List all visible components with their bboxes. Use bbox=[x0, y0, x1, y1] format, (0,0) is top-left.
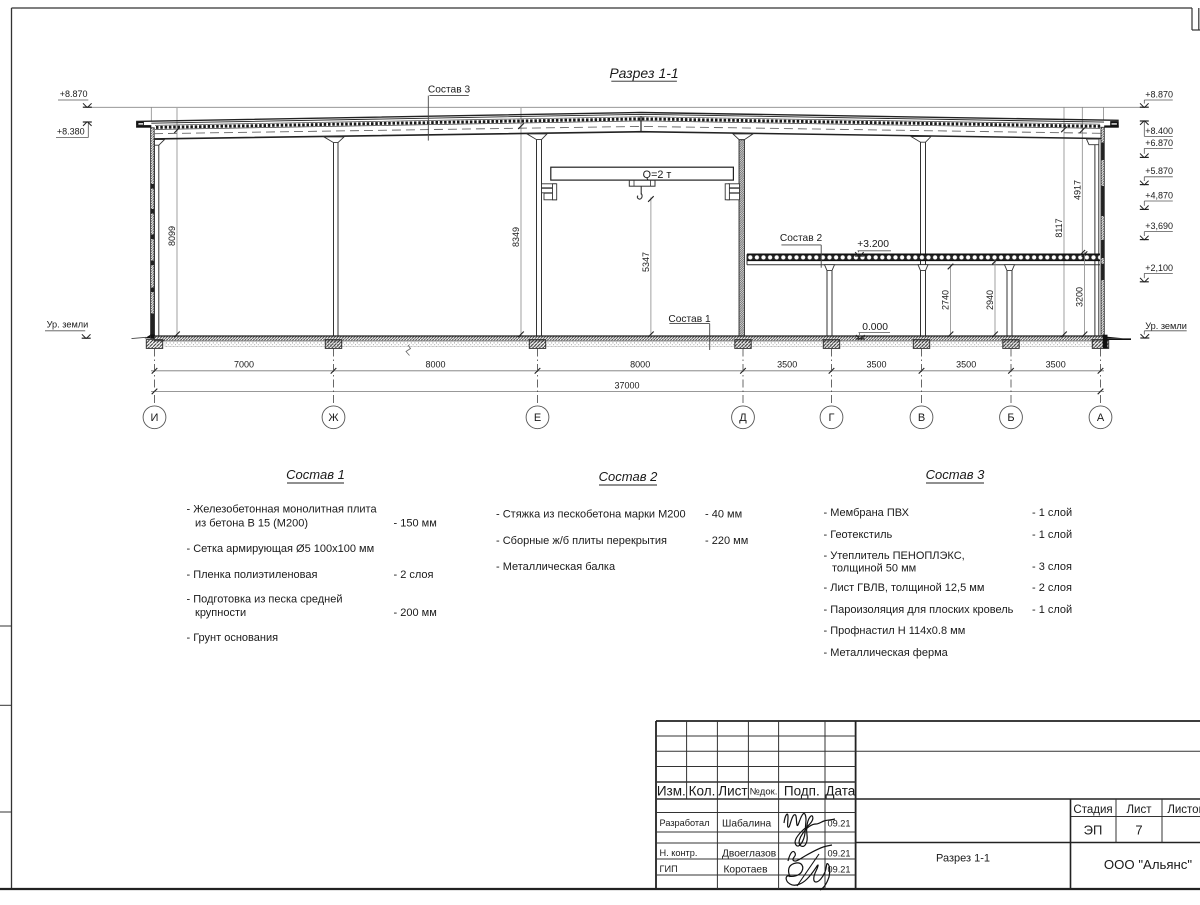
svg-text:- 3 слоя: - 3 слоя bbox=[1032, 561, 1072, 573]
svg-text:Состав 1: Состав 1 bbox=[286, 467, 345, 482]
svg-text:8000: 8000 bbox=[425, 360, 445, 370]
svg-text:8000: 8000 bbox=[630, 360, 650, 370]
svg-text:+4,870: +4,870 bbox=[1145, 190, 1173, 200]
svg-text:+3,690: +3,690 bbox=[1145, 221, 1173, 231]
svg-text:- Лист ГВЛВ, толщиной 12,5 мм: - Лист ГВЛВ, толщиной 12,5 мм bbox=[824, 582, 985, 594]
svg-text:+5.870: +5.870 bbox=[1145, 166, 1173, 176]
svg-text:0.000: 0.000 bbox=[862, 322, 888, 333]
svg-text:- 1 слой: - 1 слой bbox=[1032, 604, 1072, 616]
svg-text:- Сетка армирующая Ø5 100х100: - Сетка армирующая Ø5 100х100 мм bbox=[187, 543, 375, 555]
svg-text:Шабалина: Шабалина bbox=[722, 818, 772, 830]
svg-text:- Мембрана ПВХ: - Мембрана ПВХ bbox=[824, 507, 910, 519]
svg-text:4917: 4917 bbox=[1073, 180, 1083, 200]
svg-text:- Утеплитель ПЕНОПЛЭКС,: - Утеплитель ПЕНОПЛЭКС, bbox=[824, 550, 965, 562]
svg-text:- Металлическая балка: - Металлическая балка bbox=[496, 561, 616, 573]
svg-text:- 220 мм: - 220 мм bbox=[705, 535, 748, 547]
svg-text:+8.380: +8.380 bbox=[57, 127, 85, 137]
svg-text:- 40 мм: - 40 мм bbox=[705, 509, 742, 521]
svg-text:- 1 слой: - 1 слой bbox=[1032, 507, 1072, 519]
svg-text:Лист: Лист bbox=[1127, 804, 1153, 816]
svg-text:- 2 слоя: - 2 слоя bbox=[394, 569, 434, 581]
svg-text:- Металлическая ферма: - Металлическая ферма bbox=[824, 647, 949, 659]
svg-text:- Геотекстиль: - Геотекстиль bbox=[824, 529, 893, 541]
svg-text:+8.400: +8.400 bbox=[1145, 126, 1173, 136]
svg-text:ООО "Альянс": ООО "Альянс" bbox=[1104, 857, 1192, 872]
svg-text:09.21: 09.21 bbox=[828, 865, 851, 875]
svg-text:+8.870: +8.870 bbox=[1145, 89, 1173, 99]
svg-text:7: 7 bbox=[1135, 823, 1142, 838]
svg-text:3500: 3500 bbox=[866, 360, 886, 370]
svg-text:- Подготовка из песка средней: - Подготовка из песка средней bbox=[187, 594, 343, 606]
svg-text:3200: 3200 bbox=[1075, 287, 1085, 307]
svg-text:+8.870: +8.870 bbox=[60, 89, 88, 99]
svg-text:Q=2 т: Q=2 т bbox=[643, 169, 672, 181]
svg-text:- 1 слой: - 1 слой bbox=[1032, 529, 1072, 541]
svg-text:Б: Б bbox=[1007, 412, 1014, 424]
svg-text:37000: 37000 bbox=[614, 380, 639, 390]
svg-text:Е: Е bbox=[534, 412, 541, 424]
svg-text:8099: 8099 bbox=[167, 226, 177, 246]
svg-text:3500: 3500 bbox=[777, 360, 797, 370]
svg-text:Изм.: Изм. bbox=[657, 784, 686, 799]
svg-text:№док.: №док. bbox=[750, 787, 778, 798]
svg-text:из бетона В 15 (М200): из бетона В 15 (М200) bbox=[195, 518, 308, 530]
svg-text:3500: 3500 bbox=[956, 360, 976, 370]
svg-text:- Сборные ж/б плиты перекрытия: - Сборные ж/б плиты перекрытия bbox=[496, 535, 667, 547]
svg-text:Ур. земли: Ур. земли bbox=[47, 320, 89, 330]
svg-text:А: А bbox=[1097, 412, 1105, 424]
svg-text:- Стяжка из пескобетона марки: - Стяжка из пескобетона марки М200 bbox=[496, 509, 686, 521]
svg-text:И: И bbox=[151, 412, 159, 424]
svg-text:ГИП: ГИП bbox=[660, 864, 678, 874]
svg-text:5347: 5347 bbox=[641, 252, 651, 272]
svg-text:Состав 2: Состав 2 bbox=[599, 469, 658, 484]
svg-text:Двоеглазов: Двоеглазов bbox=[722, 849, 776, 860]
svg-text:Стадия: Стадия bbox=[1073, 804, 1112, 816]
svg-text:2940: 2940 bbox=[985, 290, 995, 310]
svg-text:В: В bbox=[918, 412, 925, 424]
svg-text:Подп.: Подп. bbox=[784, 784, 820, 799]
svg-text:+2,100: +2,100 bbox=[1145, 263, 1173, 273]
svg-text:3500: 3500 bbox=[1046, 360, 1066, 370]
svg-text:+3.200: +3.200 bbox=[857, 239, 889, 250]
svg-text:Состав 2: Состав 2 bbox=[780, 233, 823, 244]
svg-text:Разработал: Разработал bbox=[660, 818, 710, 828]
svg-text:8349: 8349 bbox=[511, 227, 521, 247]
svg-text:Н. контр.: Н. контр. bbox=[660, 848, 698, 858]
svg-text:- Пароизоляция для плоских кро: - Пароизоляция для плоских кровель bbox=[824, 604, 1014, 616]
svg-text:Г: Г bbox=[829, 412, 835, 424]
svg-text:- Железобетонная монолитная п: - Железобетонная монолитная плита bbox=[187, 504, 378, 516]
svg-text:+6.870: +6.870 bbox=[1145, 138, 1173, 148]
svg-text:- 2 слоя: - 2 слоя bbox=[1032, 582, 1072, 594]
svg-text:2740: 2740 bbox=[941, 290, 951, 310]
svg-text:Коротаев: Коротаев bbox=[724, 865, 768, 876]
svg-text:Состав 3: Состав 3 bbox=[926, 467, 985, 482]
svg-text:Ур. земли: Ур. земли bbox=[1145, 321, 1187, 331]
svg-text:ЭП: ЭП bbox=[1084, 823, 1103, 838]
svg-text:Лист: Лист bbox=[718, 784, 747, 799]
svg-text:7000: 7000 bbox=[234, 360, 254, 370]
svg-text:Дата: Дата bbox=[825, 784, 855, 799]
svg-text:Д: Д bbox=[739, 412, 747, 424]
svg-text:Состав 3: Состав 3 bbox=[428, 84, 471, 95]
svg-text:Ж: Ж bbox=[328, 412, 338, 424]
svg-text:крупности: крупности bbox=[195, 607, 246, 619]
svg-text:8117: 8117 bbox=[1054, 218, 1064, 237]
svg-text:- 150 мм: - 150 мм bbox=[394, 518, 437, 530]
svg-text:- 200 мм: - 200 мм bbox=[394, 607, 437, 619]
svg-text:- Пленка полиэтиленовая: - Пленка полиэтиленовая bbox=[187, 569, 318, 581]
svg-text:Разрез 1-1: Разрез 1-1 bbox=[936, 853, 990, 865]
svg-text:Разрез 1-1: Разрез 1-1 bbox=[609, 65, 678, 81]
svg-text:- Грунт основания: - Грунт основания bbox=[187, 632, 279, 644]
svg-text:Листов: Листов bbox=[1167, 804, 1200, 816]
svg-text:толщиной 50 мм: толщиной 50 мм bbox=[832, 563, 916, 575]
svg-text:Кол.: Кол. bbox=[689, 784, 716, 799]
svg-text:- Профнастил Н 114х0.8 мм: - Профнастил Н 114х0.8 мм bbox=[824, 625, 966, 637]
svg-text:09.21: 09.21 bbox=[828, 849, 851, 859]
